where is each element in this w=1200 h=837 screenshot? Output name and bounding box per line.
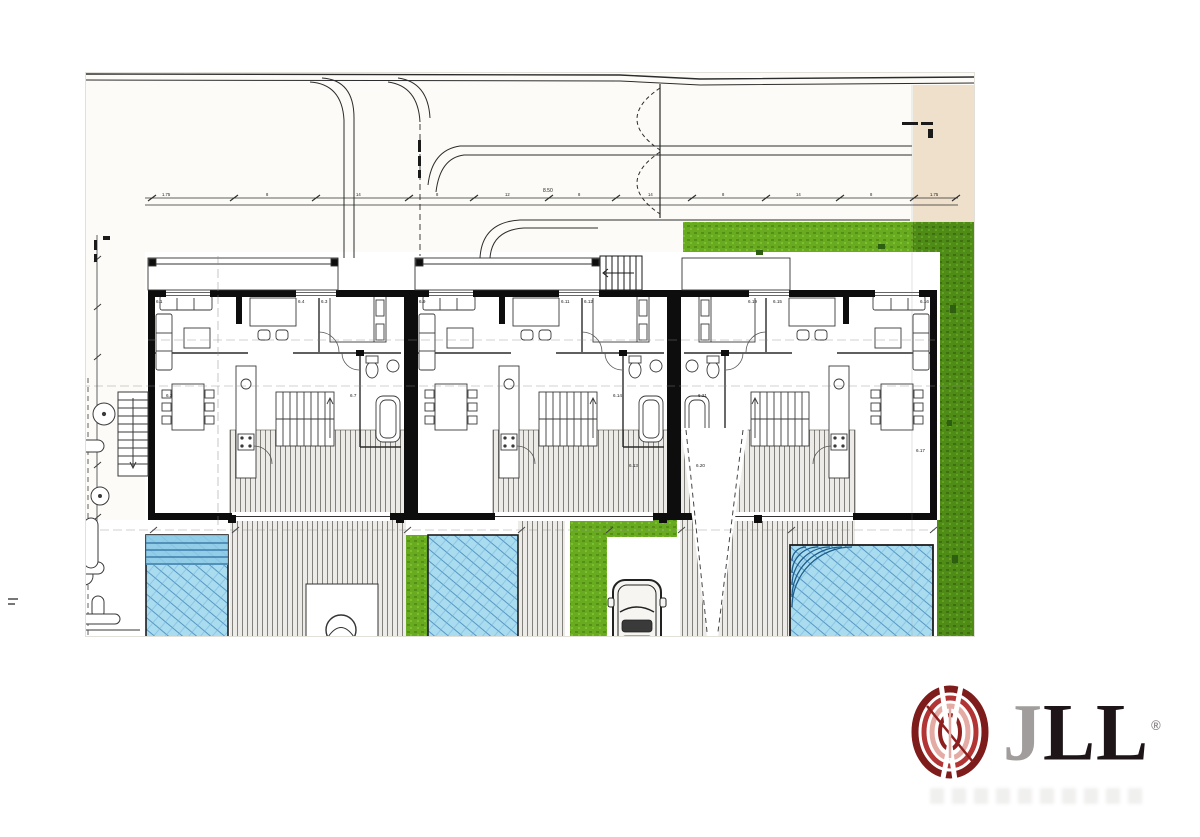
page: { "document": { "kind": "scanned archite… xyxy=(0,0,1200,832)
dim-tick: 14 xyxy=(648,192,653,197)
pool-1 xyxy=(146,535,228,637)
room-label: 6.13 xyxy=(629,463,638,468)
room-label: 6.19 xyxy=(748,299,757,304)
margin-mark xyxy=(8,598,18,605)
beige-strip xyxy=(913,85,975,227)
grass-col-driveway xyxy=(570,537,607,637)
pergola xyxy=(306,584,378,645)
dim-total: 8.50 xyxy=(543,188,553,194)
room-label: 6.11 xyxy=(561,299,570,304)
room-label: 6.16 xyxy=(920,299,929,304)
room-label: 6.17 xyxy=(916,448,925,453)
dim-tick: 1.75 xyxy=(162,192,171,197)
grass-strip xyxy=(406,535,428,637)
ghost-watermark xyxy=(930,788,1145,804)
room-label: 6.1 xyxy=(156,299,163,304)
jll-logo-text: JLL® xyxy=(1003,691,1162,773)
room-label: 6.20 xyxy=(696,463,705,468)
jll-logo-mark xyxy=(903,676,997,788)
room-label: 6.12 xyxy=(584,299,593,304)
room-label: 6.14 xyxy=(613,393,622,398)
dim-tick: 14 xyxy=(356,192,361,197)
deck-unit2 xyxy=(518,520,565,637)
entry-stair-icon xyxy=(600,256,642,290)
room-label: 6.15 xyxy=(773,299,782,304)
logo-letters-ll: LL xyxy=(1043,686,1149,777)
logo-letter-j: J xyxy=(1003,686,1043,777)
dim-tick: 12 xyxy=(505,192,510,197)
car-icon xyxy=(608,580,666,660)
room-label: 6.21 xyxy=(698,393,707,398)
dim-tick: 14 xyxy=(796,192,801,197)
registered-mark: ® xyxy=(1151,717,1162,733)
room-label: 6.2 xyxy=(166,393,173,398)
pool-2 xyxy=(428,535,518,637)
room-label: 6.7 xyxy=(350,393,357,398)
room-label: 6.3 xyxy=(321,299,328,304)
room-label: 6.9 xyxy=(419,299,426,304)
dim-tick: 1.75 xyxy=(930,192,939,197)
pool-3 xyxy=(790,545,933,637)
room-label: 6.4 xyxy=(298,299,305,304)
